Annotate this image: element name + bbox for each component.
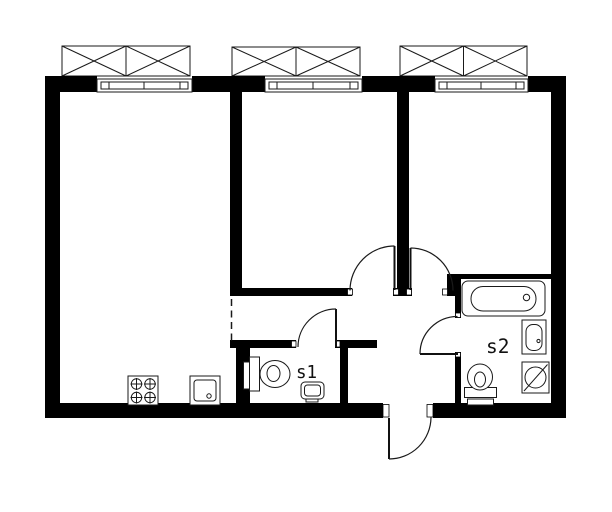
towel-rail-icon xyxy=(244,362,250,389)
s1-toilet-icon xyxy=(250,357,291,391)
room-label-s2: s2 xyxy=(486,335,509,358)
wall-left xyxy=(45,76,60,418)
door-s2 xyxy=(420,313,461,357)
wall-bottom-right xyxy=(433,403,566,418)
window-3-box-icon xyxy=(400,46,527,76)
kitchen-fixtures xyxy=(128,376,220,405)
window-unit-boxes xyxy=(62,46,527,76)
kitchen-sink-icon xyxy=(190,376,220,405)
s2-washbasin-icon xyxy=(522,320,546,354)
washing-machine-icon xyxy=(522,362,549,393)
wall-s2-left-lower xyxy=(455,352,461,405)
door-entrance xyxy=(383,405,433,460)
floor-plan-canvas: s1 s2 xyxy=(0,0,612,512)
wall-right xyxy=(551,76,566,418)
door-entrance-arc xyxy=(389,418,431,460)
wall-room2-room3 xyxy=(397,92,409,289)
s2-toilet-icon xyxy=(465,364,497,405)
window-2-frame xyxy=(265,79,362,92)
wall-s1-top-right xyxy=(335,340,377,348)
wall-room2-hall xyxy=(238,288,352,296)
wall-room1-room2 xyxy=(230,92,242,296)
wall-top-3 xyxy=(362,76,435,92)
doors xyxy=(292,246,461,459)
window-1-frame xyxy=(97,79,192,92)
window-1-box-icon xyxy=(62,46,190,76)
floor-plan: s1 s2 xyxy=(0,0,612,512)
door-room3-arc xyxy=(411,248,454,291)
door-s1-arc xyxy=(298,309,336,347)
door-room2-arc xyxy=(350,246,395,291)
wall-s2-left-upper xyxy=(455,274,461,318)
door-s1 xyxy=(292,309,341,347)
door-room3 xyxy=(407,248,454,295)
window-frames xyxy=(97,79,528,92)
bathtub-icon xyxy=(462,281,545,316)
stove-icon xyxy=(128,376,158,405)
wall-s2-top xyxy=(455,274,553,279)
room-label-s1: s1 xyxy=(296,363,317,383)
wall-top-2 xyxy=(192,76,265,92)
wall-s1-right xyxy=(340,348,348,405)
door-room2 xyxy=(348,246,399,295)
window-2-box-icon xyxy=(232,47,360,76)
window-3-frame xyxy=(435,79,528,92)
s1-washbasin-icon xyxy=(301,382,324,402)
door-s2-arc xyxy=(420,317,458,355)
